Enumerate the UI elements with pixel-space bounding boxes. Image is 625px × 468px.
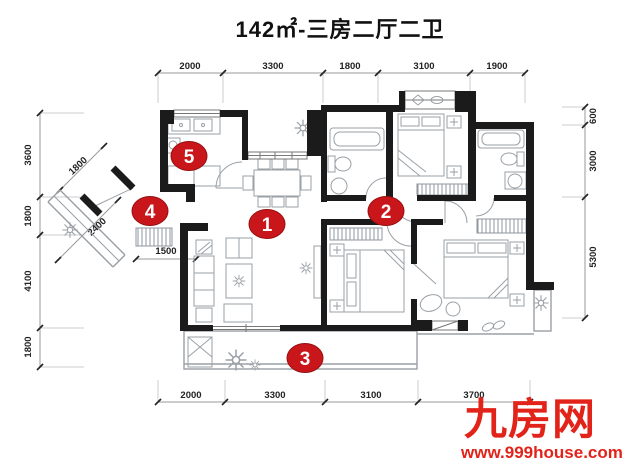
dim-left-4: 1800	[23, 336, 34, 357]
shoe-cabinet	[136, 228, 172, 246]
bedroom3-furniture	[330, 222, 411, 312]
floorplan-page: 142㎡-三房二厅二卫	[0, 0, 625, 468]
master-bedroom-furniture	[414, 201, 527, 316]
dim-top-2: 3300	[262, 61, 283, 72]
dim-top-4: 3100	[413, 61, 434, 72]
plant-icon	[300, 262, 313, 275]
room-marker-2: 2	[368, 197, 404, 226]
svg-text:2: 2	[381, 202, 392, 223]
watermark-url: www.999house.com	[461, 444, 623, 461]
dim-top-1: 2000	[179, 61, 200, 72]
room-marker-1: 1	[249, 210, 285, 239]
svg-text:3: 3	[300, 349, 311, 370]
bedroom2-furniture	[393, 114, 468, 222]
bay-window	[405, 91, 455, 109]
plant-icon	[249, 359, 260, 370]
dim-bottom-1: 2000	[180, 390, 201, 401]
dining-set	[243, 159, 311, 207]
watermark-brand: 九房网	[464, 399, 596, 442]
plant-icon	[226, 350, 247, 371]
angled-wall	[113, 168, 133, 188]
dim-entry-1500: 1500	[155, 246, 176, 257]
bathroom-fixtures	[328, 128, 386, 198]
dim-entry-1800: 1800	[67, 155, 90, 177]
dimension-chain-left: 3600 1800 4100 1800	[23, 110, 84, 370]
dim-right-1: 600	[588, 108, 599, 124]
wardrobe	[477, 219, 527, 233]
dim-right-3: 5300	[588, 246, 599, 267]
sofa-set	[194, 238, 321, 322]
dim-right-2: 3000	[588, 150, 599, 171]
dim-top-5: 1900	[486, 61, 507, 72]
plant-icon	[533, 295, 548, 310]
svg-text:4: 4	[145, 202, 156, 223]
wardrobe	[330, 228, 382, 240]
dim-left-1: 3600	[23, 144, 34, 165]
svg-text:1: 1	[262, 215, 273, 236]
dimension-chain-right: 600 3000 5300	[562, 104, 599, 321]
room-marker-5: 5	[171, 142, 207, 171]
svg-text:5: 5	[184, 147, 195, 168]
plant-icon	[233, 275, 246, 288]
room-markers: 1 2 3 4 5	[132, 142, 404, 373]
plant-icon	[62, 222, 77, 237]
room-marker-4: 4	[132, 197, 168, 226]
dim-top-3: 1800	[339, 61, 360, 72]
wardrobe	[417, 184, 468, 195]
dim-bottom-3: 3100	[360, 390, 381, 401]
master-bath-fixtures	[476, 130, 526, 216]
room-marker-3: 3	[287, 344, 323, 373]
dim-bottom-2: 3300	[264, 390, 285, 401]
dim-left-3: 4100	[23, 270, 34, 291]
dim-left-2: 1800	[23, 205, 34, 226]
